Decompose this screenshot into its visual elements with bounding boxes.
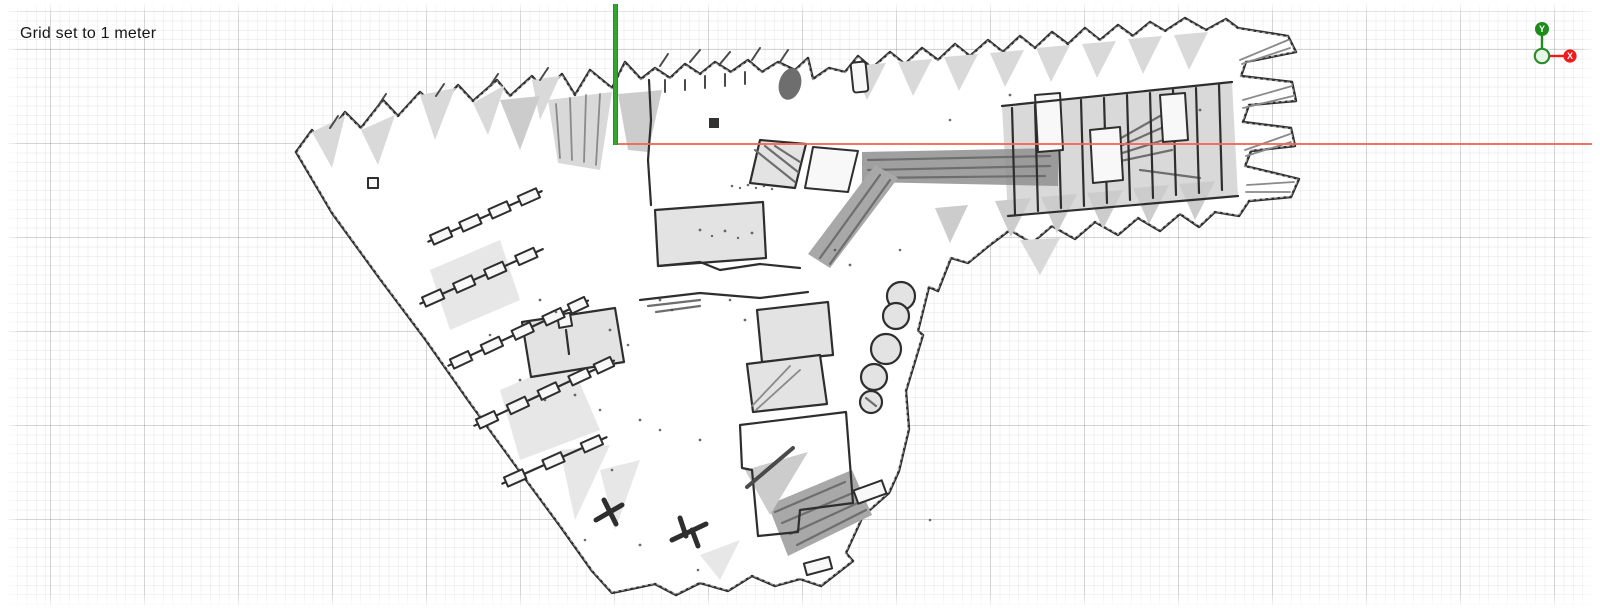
occupancy-grid-map	[0, 0, 1600, 616]
gizmo-x-label: X	[1567, 51, 1573, 61]
gizmo-origin[interactable]	[1535, 49, 1549, 63]
grid-overlay-text: Grid set to 1 meter	[20, 25, 156, 43]
y-axis-line	[613, 4, 618, 145]
viewer-window: Grid set to 1 meter Y X	[0, 0, 1600, 616]
orientation-gizmo[interactable]: Y X	[1522, 16, 1582, 68]
x-axis-line	[615, 143, 1592, 145]
gizmo-y-label: Y	[1539, 24, 1545, 34]
